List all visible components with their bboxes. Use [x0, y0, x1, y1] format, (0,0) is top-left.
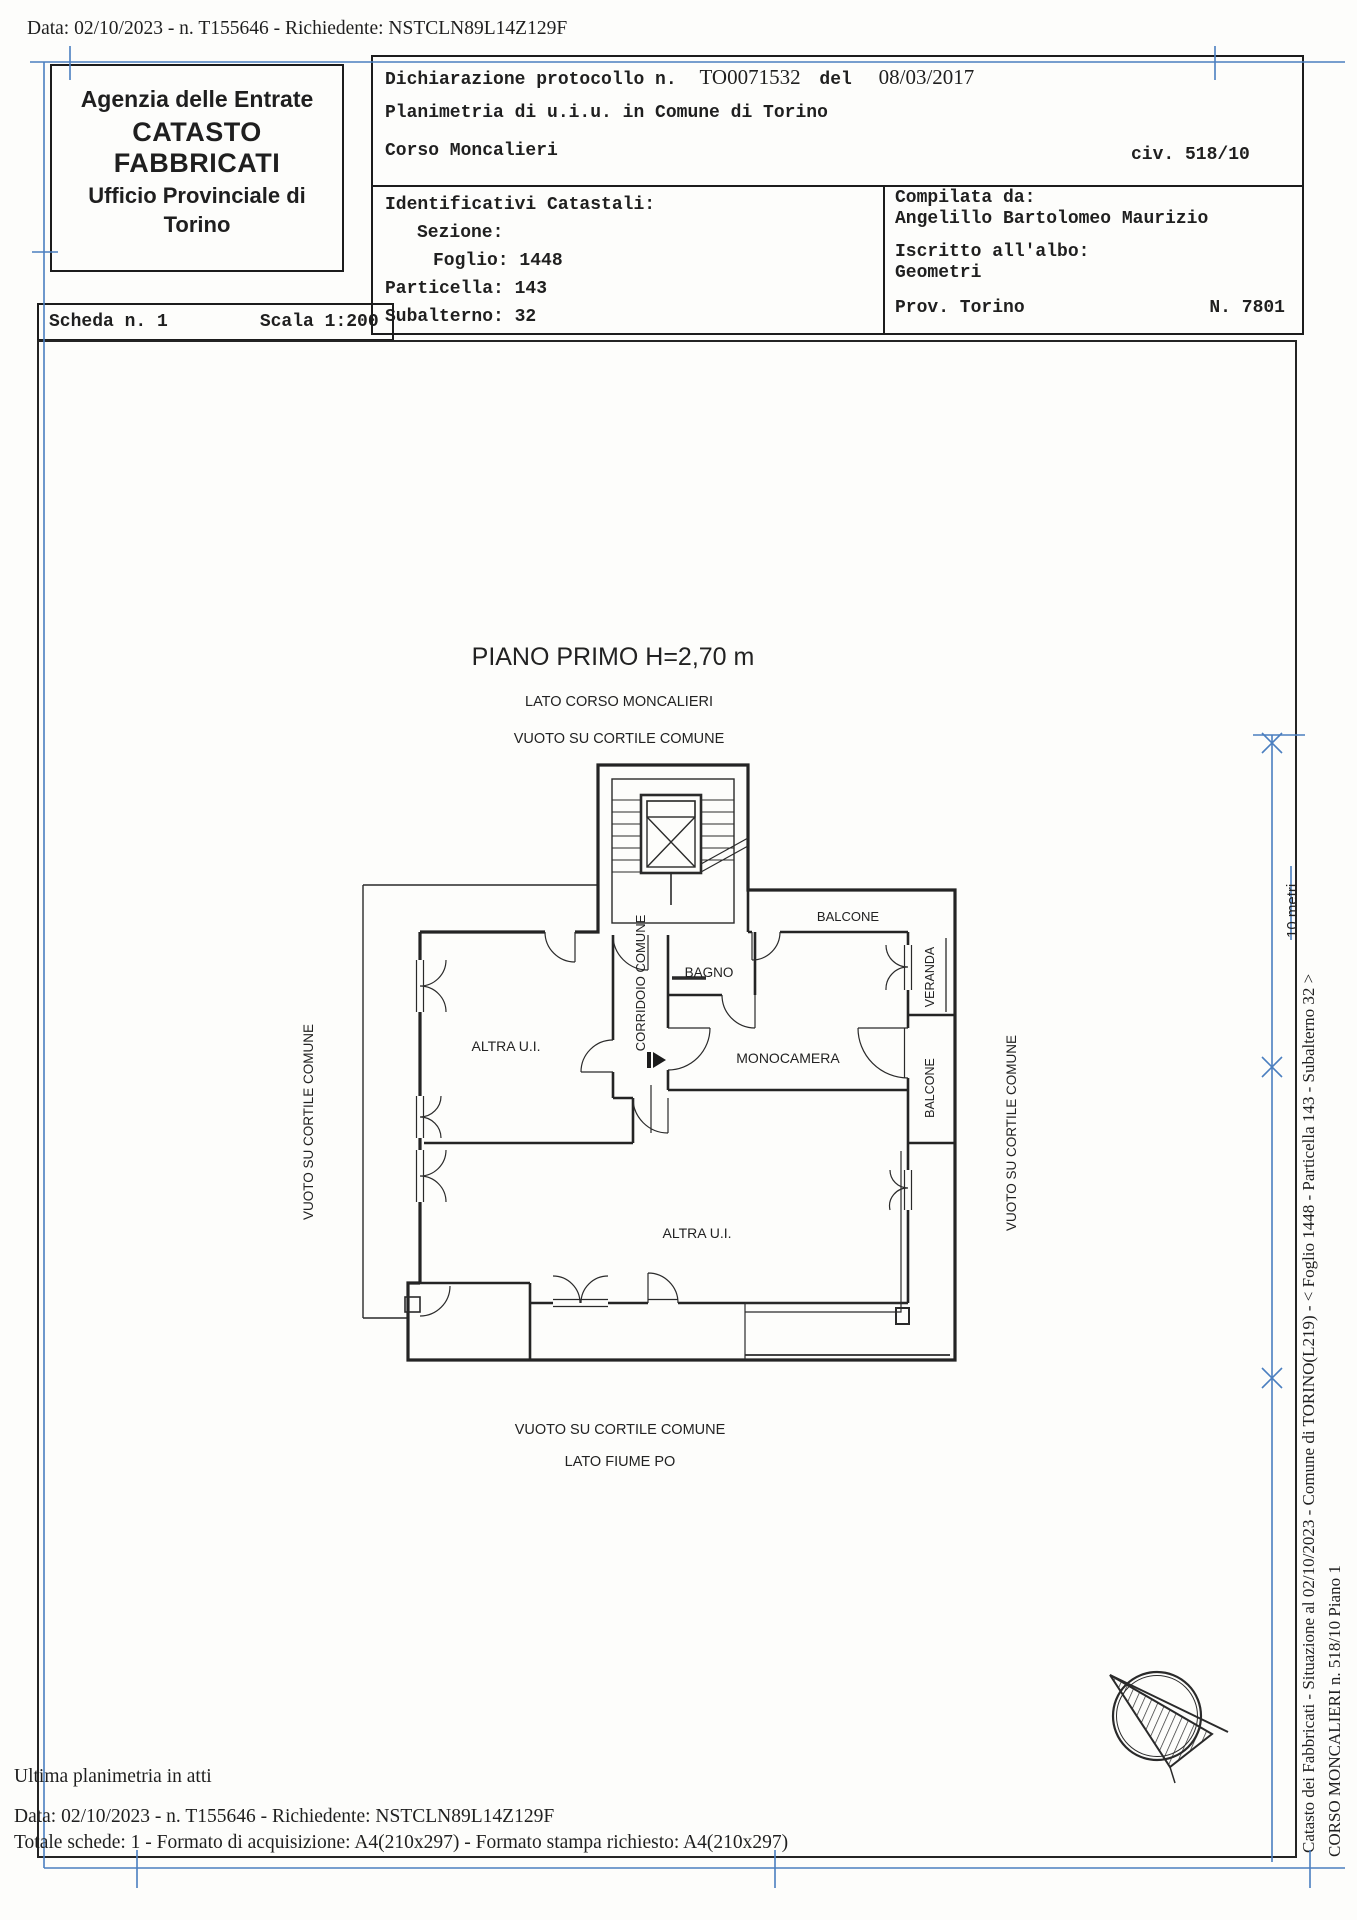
- label-bagno: BAGNO: [685, 965, 734, 980]
- window-left-3: [417, 1150, 447, 1202]
- label-lato-corso: LATO CORSO MONCALIERI: [525, 694, 713, 710]
- small-rooms-walls: [408, 1283, 530, 1360]
- label-vuoto-left: VUOTO SU CORTILE COMUNE: [301, 1024, 316, 1220]
- door-corridor-left: [581, 1040, 613, 1072]
- north-arrow-tail: [1170, 1767, 1175, 1783]
- outer-footprint: [408, 765, 955, 1360]
- blue-top-ticks: [32, 46, 1215, 252]
- blue-bottom-ticks: [137, 1850, 1310, 1888]
- stair-direction-line: [701, 838, 748, 872]
- label-veranda: VERANDA: [923, 946, 937, 1007]
- elevator-cross: [647, 817, 695, 867]
- footer-line-2: Data: 02/10/2023 - n. T155646 - Richiede…: [14, 1806, 554, 1828]
- elevator-door-bar: [647, 801, 695, 817]
- terrace-edges: [745, 1303, 950, 1355]
- label-balcone-right: BALCONE: [923, 1058, 937, 1118]
- mid-walls: [424, 1090, 908, 1143]
- door-bagno: [722, 995, 755, 1028]
- building-walls: [408, 765, 955, 1360]
- door-corridor-bottom: [633, 1085, 668, 1133]
- label-monocamera: MONOCAMERA: [736, 1050, 840, 1066]
- stair-treads-right: [701, 800, 734, 860]
- label-corridoio: CORRIDOIO COMUNE: [633, 914, 648, 1051]
- label-balcone-top: BALCONE: [817, 909, 879, 924]
- plan-title: PIANO PRIMO H=2,70 m: [472, 643, 755, 671]
- footer-line-1: Ultima planimetria in atti: [14, 1766, 212, 1788]
- door-marker-triangle: [653, 1052, 666, 1068]
- courtyard-lines: [363, 885, 598, 1318]
- north-arrow: [1110, 1672, 1228, 1783]
- footer-line-3: Totale schede: 1 - Formato di acquisizio…: [14, 1832, 788, 1854]
- label-vuoto-top: VUOTO SU CORTILE COMUNE: [514, 731, 725, 747]
- elevator-shaft: [641, 795, 701, 873]
- terrace-strip: [745, 1303, 950, 1355]
- window-bottom-2: [648, 1273, 678, 1303]
- door-marker-bar: [647, 1052, 651, 1068]
- door-balcone: [858, 1028, 908, 1078]
- cadastral-document-page: Data: 02/10/2023 - n. T155646 - Richiede…: [0, 0, 1357, 1920]
- label-lato-fiume: LATO FIUME PO: [565, 1454, 676, 1470]
- window-left-1: [417, 960, 447, 1012]
- terrace-post: [896, 1308, 909, 1324]
- terrace-inner-line: [745, 1151, 901, 1312]
- door-upper-apartment: [545, 932, 575, 962]
- window-left-2: [417, 1096, 442, 1138]
- label-vuoto-bottom: VUOTO SU CORTILE COMUNE: [515, 1422, 726, 1438]
- window-veranda: [886, 945, 912, 990]
- label-altra-ui-upper: ALTRA U.I.: [472, 1038, 541, 1054]
- window-bottom-1: [553, 1276, 608, 1307]
- door-corridor-right: [668, 1028, 710, 1070]
- door-small-room: [420, 1286, 450, 1316]
- courtyard-boundary: [363, 885, 598, 1318]
- floor-plan-drawing: 10 metri: [0, 0, 1357, 1920]
- stair-treads-left: [612, 800, 641, 872]
- bagno-walls: [668, 932, 755, 995]
- doors-and-windows: [417, 932, 912, 1316]
- scale-note-text: 10 metri: [1284, 884, 1301, 938]
- label-vuoto-right: VUOTO SU CORTILE COMUNE: [1004, 1035, 1019, 1231]
- elevator-cab: [647, 801, 695, 867]
- label-altra-ui-lower: ALTRA U.I.: [663, 1225, 732, 1241]
